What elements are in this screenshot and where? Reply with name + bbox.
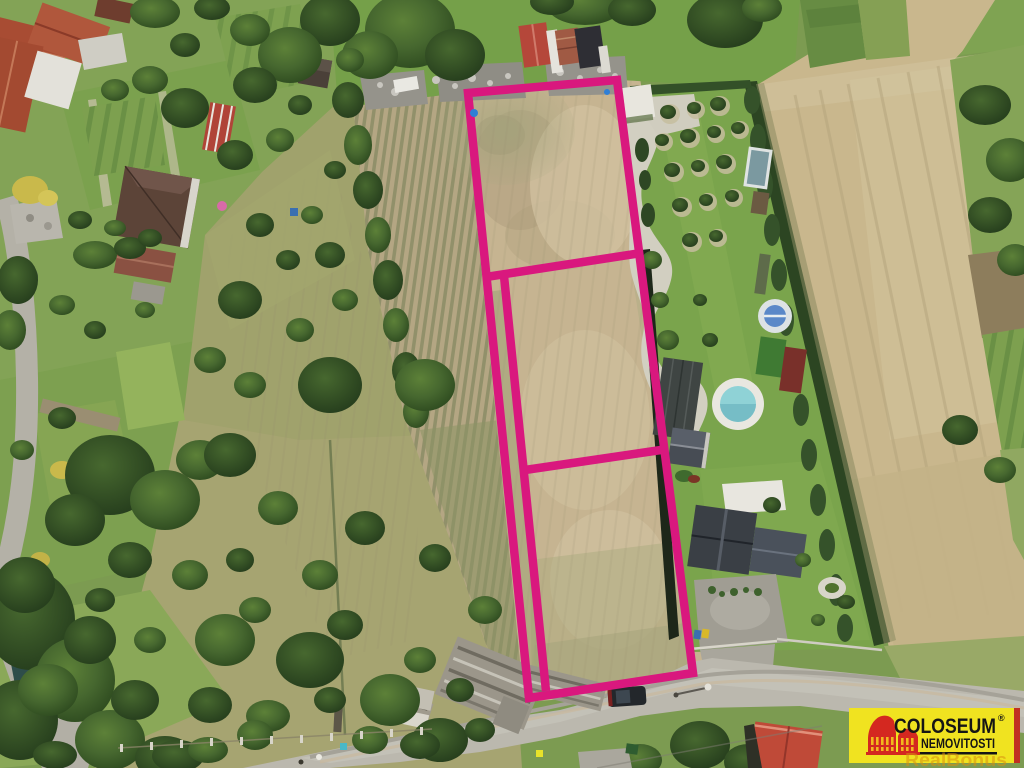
svg-text:COLOSEUM: COLOSEUM bbox=[894, 715, 996, 738]
svg-text:NEMOVITOSTI: NEMOVITOSTI bbox=[921, 736, 995, 751]
svg-text:RealBonus: RealBonus bbox=[905, 750, 1007, 768]
svg-text:®: ® bbox=[998, 713, 1005, 723]
